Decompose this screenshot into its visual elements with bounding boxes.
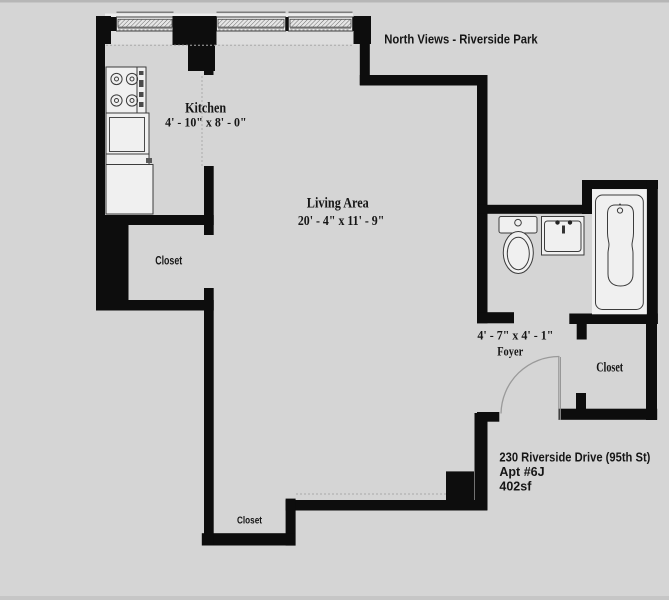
svg-text:402sf: 402sf [499,480,532,494]
svg-text:Closet: Closet [237,515,262,527]
svg-text:4' - 7" x 4' - 1": 4' - 7" x 4' - 1" [477,328,553,343]
svg-text:20' - 4" x 11' - 9": 20' - 4" x 11' - 9" [298,213,385,228]
svg-text:230 Riverside Drive (95th St): 230 Riverside Drive (95th St) [499,451,650,465]
svg-text:4' - 10" x 8' - 0": 4' - 10" x 8' - 0" [165,115,247,130]
svg-text:Apt #6J: Apt #6J [499,465,544,479]
svg-text:Foyer: Foyer [497,344,523,359]
svg-text:North Views - Riverside Park: North Views - Riverside Park [384,32,538,47]
svg-text:Closet: Closet [155,255,182,267]
svg-text:Closet: Closet [596,360,623,375]
svg-text:Living Area: Living Area [307,196,369,212]
